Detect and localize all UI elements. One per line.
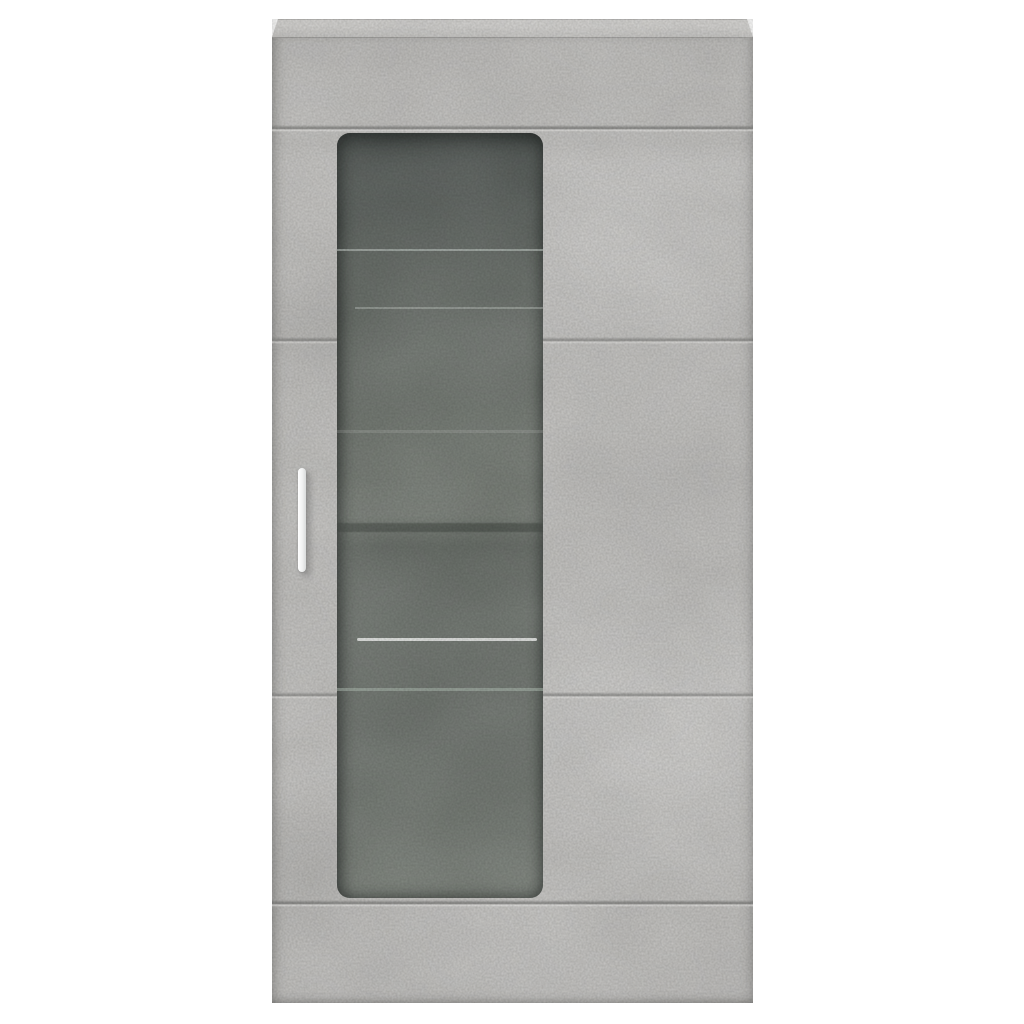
glass-shelf-edge — [337, 688, 543, 691]
interior-back-seam — [337, 430, 543, 433]
glass-shelf-edge — [355, 307, 543, 309]
door-handle — [298, 468, 306, 572]
panel-seam — [272, 125, 753, 132]
dark-shelf-band — [337, 523, 543, 532]
glass-door-window — [337, 133, 543, 898]
glass-shelf-edge — [337, 249, 543, 251]
photo-background — [0, 0, 1024, 1024]
glass-shelf-edge — [357, 638, 537, 641]
cabinet-top-panel — [272, 19, 753, 37]
panel-seam — [272, 900, 753, 907]
wall-cabinet — [272, 19, 753, 1003]
